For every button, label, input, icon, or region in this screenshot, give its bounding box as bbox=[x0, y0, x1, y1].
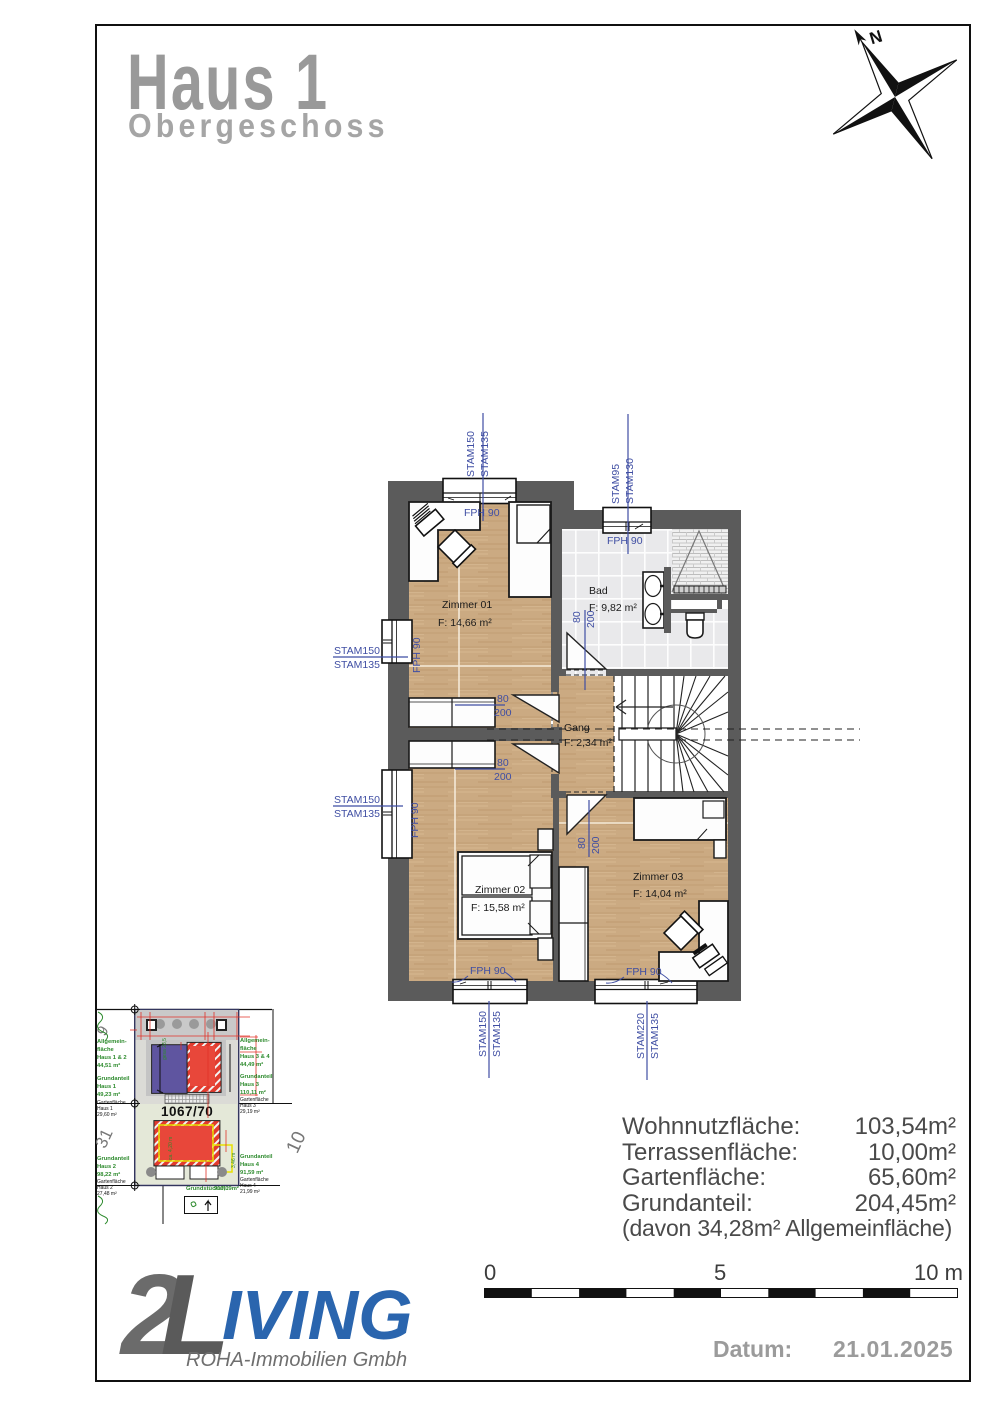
svg-text:Haus 4: Haus 4 bbox=[240, 1162, 260, 1168]
svg-text:44,49 m²: 44,49 m² bbox=[240, 1061, 263, 1068]
svg-text:STAM150: STAM150 bbox=[465, 431, 477, 477]
svg-text:Grundanteil: Grundanteil bbox=[240, 1074, 273, 1080]
svg-text:Gang: Gang bbox=[564, 722, 590, 734]
svg-text:31: 31 bbox=[92, 1126, 117, 1151]
svg-text:Zimmer 02: Zimmer 02 bbox=[475, 884, 525, 896]
svg-text:N: N bbox=[867, 27, 884, 49]
svg-text:STAM95: STAM95 bbox=[610, 464, 622, 504]
svg-text:gesa 23,5: gesa 23,5 bbox=[162, 1038, 168, 1060]
svg-text:44,51 m²: 44,51 m² bbox=[97, 1062, 120, 1069]
svg-text:Grundanteil: Grundanteil bbox=[97, 1156, 130, 1162]
svg-text:STAM220: STAM220 bbox=[635, 1013, 647, 1059]
svg-text:27,48 m²: 27,48 m² bbox=[97, 1191, 117, 1197]
svg-text:80: 80 bbox=[497, 757, 509, 769]
svg-text:FPH 90: FPH 90 bbox=[409, 802, 421, 838]
svg-text:ca. 4,20 m: ca. 4,20 m bbox=[168, 1137, 174, 1160]
svg-text:STAM130: STAM130 bbox=[624, 458, 636, 504]
svg-text:Haus 1 & 2: Haus 1 & 2 bbox=[97, 1055, 127, 1061]
svg-text:Haus 3 & 4: Haus 3 & 4 bbox=[240, 1054, 270, 1060]
svg-text:Haus 2: Haus 2 bbox=[97, 1164, 116, 1170]
svg-text:10: 10 bbox=[283, 1128, 311, 1156]
svg-text:FPH 90: FPH 90 bbox=[607, 535, 643, 547]
svg-text:F: 14,04 m²: F: 14,04 m² bbox=[633, 888, 687, 900]
svg-text:200: 200 bbox=[494, 771, 512, 783]
svg-text:Haus 3: Haus 3 bbox=[240, 1082, 260, 1088]
svg-text:Grundanteil: Grundanteil bbox=[240, 1154, 273, 1160]
svg-text:200: 200 bbox=[590, 836, 602, 854]
svg-text:49,23 m²: 49,23 m² bbox=[97, 1091, 120, 1098]
svg-text:Allgemein-: Allgemein- bbox=[97, 1039, 127, 1045]
svg-text:STAM135: STAM135 bbox=[334, 808, 380, 820]
svg-text:STAM150: STAM150 bbox=[334, 794, 380, 806]
svg-text:STAM150: STAM150 bbox=[477, 1011, 489, 1057]
svg-text:3,46 m: 3,46 m bbox=[231, 1153, 237, 1168]
svg-text:fläche: fläche bbox=[240, 1046, 258, 1052]
svg-text:Grundanteil: Grundanteil bbox=[97, 1076, 130, 1082]
svg-text:200: 200 bbox=[494, 707, 512, 719]
svg-text:91,59 m²: 91,59 m² bbox=[240, 1169, 263, 1176]
svg-text:9: 9 bbox=[94, 1023, 113, 1039]
svg-text:FPH 90: FPH 90 bbox=[626, 966, 662, 978]
svg-text:STAM150: STAM150 bbox=[334, 645, 380, 657]
svg-text:FPH 90: FPH 90 bbox=[411, 637, 423, 673]
svg-text:Haus 1: Haus 1 bbox=[97, 1084, 117, 1090]
svg-text:STAM135: STAM135 bbox=[649, 1013, 661, 1059]
svg-text:29,19 m²: 29,19 m² bbox=[240, 1109, 260, 1115]
svg-text:Zimmer 01: Zimmer 01 bbox=[442, 599, 492, 611]
svg-text:STAM135: STAM135 bbox=[491, 1011, 503, 1057]
svg-text:fläche: fläche bbox=[97, 1047, 115, 1053]
svg-text:80: 80 bbox=[576, 837, 588, 849]
svg-text:Allgemein-: Allgemein- bbox=[240, 1038, 270, 1044]
svg-text:98,22 m²: 98,22 m² bbox=[97, 1171, 120, 1178]
svg-text:F: 14,66 m²: F: 14,66 m² bbox=[438, 617, 492, 629]
svg-text:FPH 90: FPH 90 bbox=[470, 965, 506, 977]
svg-text:Bad: Bad bbox=[589, 585, 608, 597]
svg-text:910,09m²: 910,09m² bbox=[214, 1185, 239, 1192]
svg-text:29,60 m²: 29,60 m² bbox=[97, 1112, 117, 1118]
svg-text:F: 9,82 m²: F: 9,82 m² bbox=[589, 602, 637, 614]
svg-text:110,11 m²: 110,11 m² bbox=[240, 1089, 266, 1096]
svg-text:STAM135: STAM135 bbox=[479, 431, 491, 477]
svg-text:F: 15,58 m²: F: 15,58 m² bbox=[471, 902, 525, 914]
svg-text:STAM135: STAM135 bbox=[334, 659, 380, 671]
svg-text:Zimmer 03: Zimmer 03 bbox=[633, 871, 683, 883]
svg-text:1067/70: 1067/70 bbox=[161, 1104, 213, 1119]
svg-text:80: 80 bbox=[571, 611, 583, 623]
svg-text:80: 80 bbox=[497, 693, 509, 705]
svg-text:F: 2,34 m²: F: 2,34 m² bbox=[564, 737, 612, 749]
svg-text:FPH 90: FPH 90 bbox=[464, 507, 500, 519]
svg-text:21,99 m²: 21,99 m² bbox=[240, 1189, 260, 1195]
